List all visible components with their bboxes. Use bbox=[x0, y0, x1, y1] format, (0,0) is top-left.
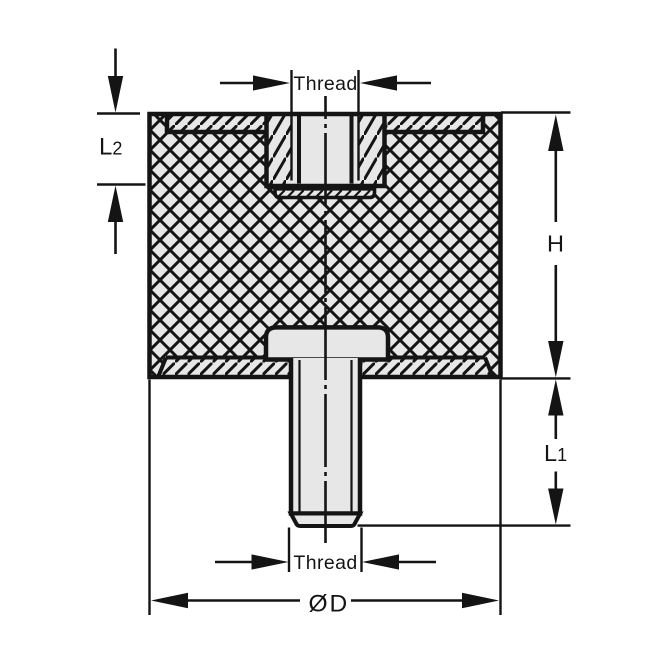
svg-text:L2: L2 bbox=[99, 134, 122, 161]
svg-text:Thread: Thread bbox=[293, 73, 357, 95]
svg-text:H: H bbox=[547, 231, 564, 257]
svg-text:Thread: Thread bbox=[293, 552, 357, 574]
svg-text:ØD: ØD bbox=[309, 591, 350, 618]
